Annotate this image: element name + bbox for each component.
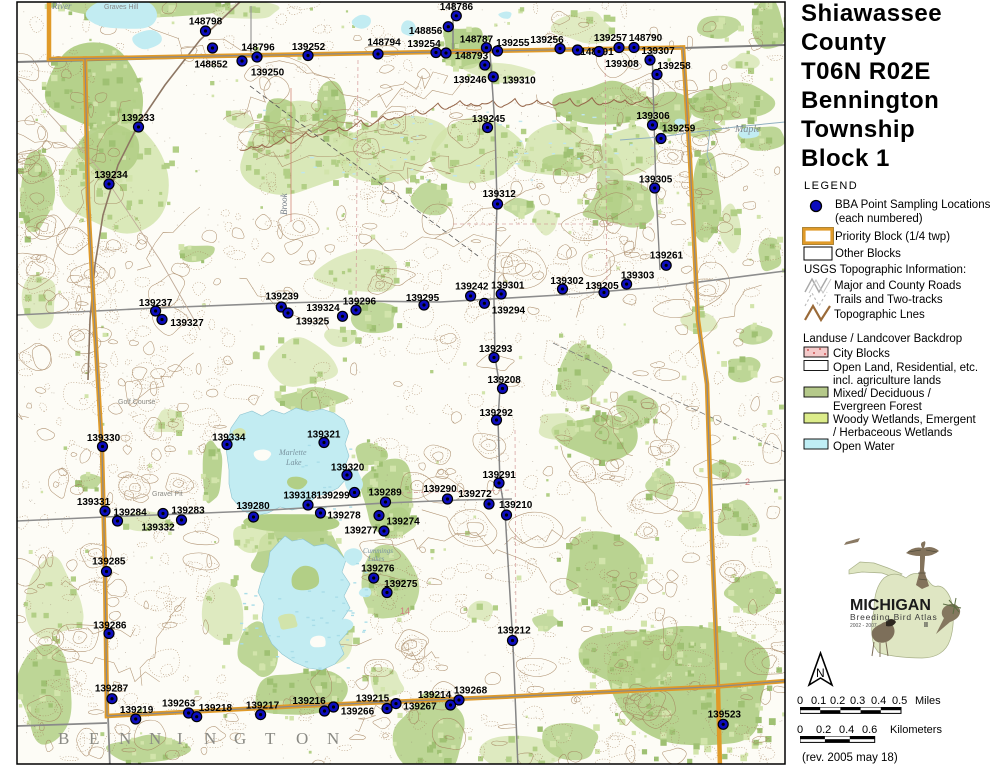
- svg-text:139332: 139332: [141, 523, 175, 534]
- svg-text:139257: 139257: [594, 33, 628, 44]
- svg-text:139310: 139310: [502, 76, 536, 87]
- svg-text:139302: 139302: [550, 276, 584, 287]
- svg-text:139308: 139308: [605, 59, 639, 70]
- svg-text:E: E: [89, 729, 99, 748]
- svg-text:139215: 139215: [356, 693, 390, 704]
- svg-text:139246: 139246: [453, 75, 487, 86]
- svg-text:139261: 139261: [650, 250, 684, 261]
- svg-text:139210: 139210: [499, 500, 533, 511]
- svg-text:139312: 139312: [483, 189, 517, 200]
- svg-text:139239: 139239: [265, 292, 299, 303]
- svg-text:Graves Hill: Graves Hill: [104, 4, 139, 11]
- svg-text:N: N: [119, 729, 131, 748]
- svg-text:2: 2: [745, 477, 750, 487]
- svg-text:II: II: [924, 622, 928, 629]
- svg-text:139276: 139276: [361, 564, 395, 575]
- svg-text:139216: 139216: [292, 696, 326, 707]
- svg-text:139250: 139250: [251, 68, 285, 79]
- svg-text:139214: 139214: [418, 690, 452, 701]
- svg-text:139287: 139287: [95, 683, 129, 694]
- svg-text:N: N: [816, 666, 825, 680]
- svg-text:139258: 139258: [657, 61, 691, 72]
- svg-text:I: I: [177, 729, 183, 748]
- svg-text:139318: 139318: [283, 491, 317, 502]
- svg-text:139324: 139324: [306, 303, 340, 314]
- svg-text:Cummings: Cummings: [363, 547, 393, 555]
- svg-text:139299: 139299: [316, 491, 350, 502]
- svg-text:139267: 139267: [403, 702, 437, 713]
- svg-text:139290: 139290: [423, 484, 457, 495]
- svg-text:14: 14: [400, 606, 410, 616]
- svg-text:Golf Course: Golf Course: [118, 399, 155, 406]
- svg-text:Breeding Bird Atlas: Breeding Bird Atlas: [850, 612, 938, 622]
- svg-text:139218: 139218: [199, 703, 233, 714]
- svg-text:148794: 148794: [367, 38, 401, 49]
- svg-text:G: G: [234, 729, 246, 748]
- svg-text:2002 - 2007: 2002 - 2007: [850, 623, 877, 629]
- svg-text:139294: 139294: [492, 305, 526, 316]
- svg-text:O: O: [296, 729, 308, 748]
- svg-text:N: N: [149, 729, 161, 748]
- svg-text:139266: 139266: [341, 706, 375, 717]
- svg-text:N: N: [204, 729, 216, 748]
- svg-text:139325: 139325: [296, 316, 330, 327]
- svg-text:T: T: [265, 729, 276, 748]
- svg-text:139259: 139259: [662, 124, 696, 135]
- svg-text:148852: 148852: [194, 60, 228, 71]
- svg-text:139523: 139523: [708, 709, 742, 720]
- svg-text:Marlette: Marlette: [278, 448, 307, 457]
- svg-text:Brook: Brook: [279, 192, 289, 215]
- svg-text:Lake: Lake: [285, 458, 302, 467]
- svg-text:139283: 139283: [171, 506, 205, 517]
- svg-text:139263: 139263: [162, 698, 196, 709]
- svg-text:139274: 139274: [386, 517, 420, 528]
- svg-text:139301: 139301: [491, 281, 525, 292]
- svg-text:Lakes: Lakes: [367, 555, 385, 563]
- svg-text:139280: 139280: [236, 501, 270, 512]
- svg-text:139212: 139212: [497, 625, 531, 636]
- svg-text:139272: 139272: [458, 489, 492, 500]
- svg-text:139307: 139307: [641, 46, 675, 57]
- svg-text:139327: 139327: [170, 318, 204, 329]
- svg-text:139277: 139277: [344, 526, 378, 537]
- svg-text:Maple: Maple: [734, 124, 761, 135]
- svg-text:Gravel Pit: Gravel Pit: [152, 491, 183, 498]
- svg-text:N: N: [327, 729, 339, 748]
- svg-text:148856: 148856: [409, 26, 443, 37]
- svg-text:139278: 139278: [327, 511, 361, 522]
- svg-text:B: B: [58, 729, 69, 748]
- svg-text:139285: 139285: [92, 556, 126, 567]
